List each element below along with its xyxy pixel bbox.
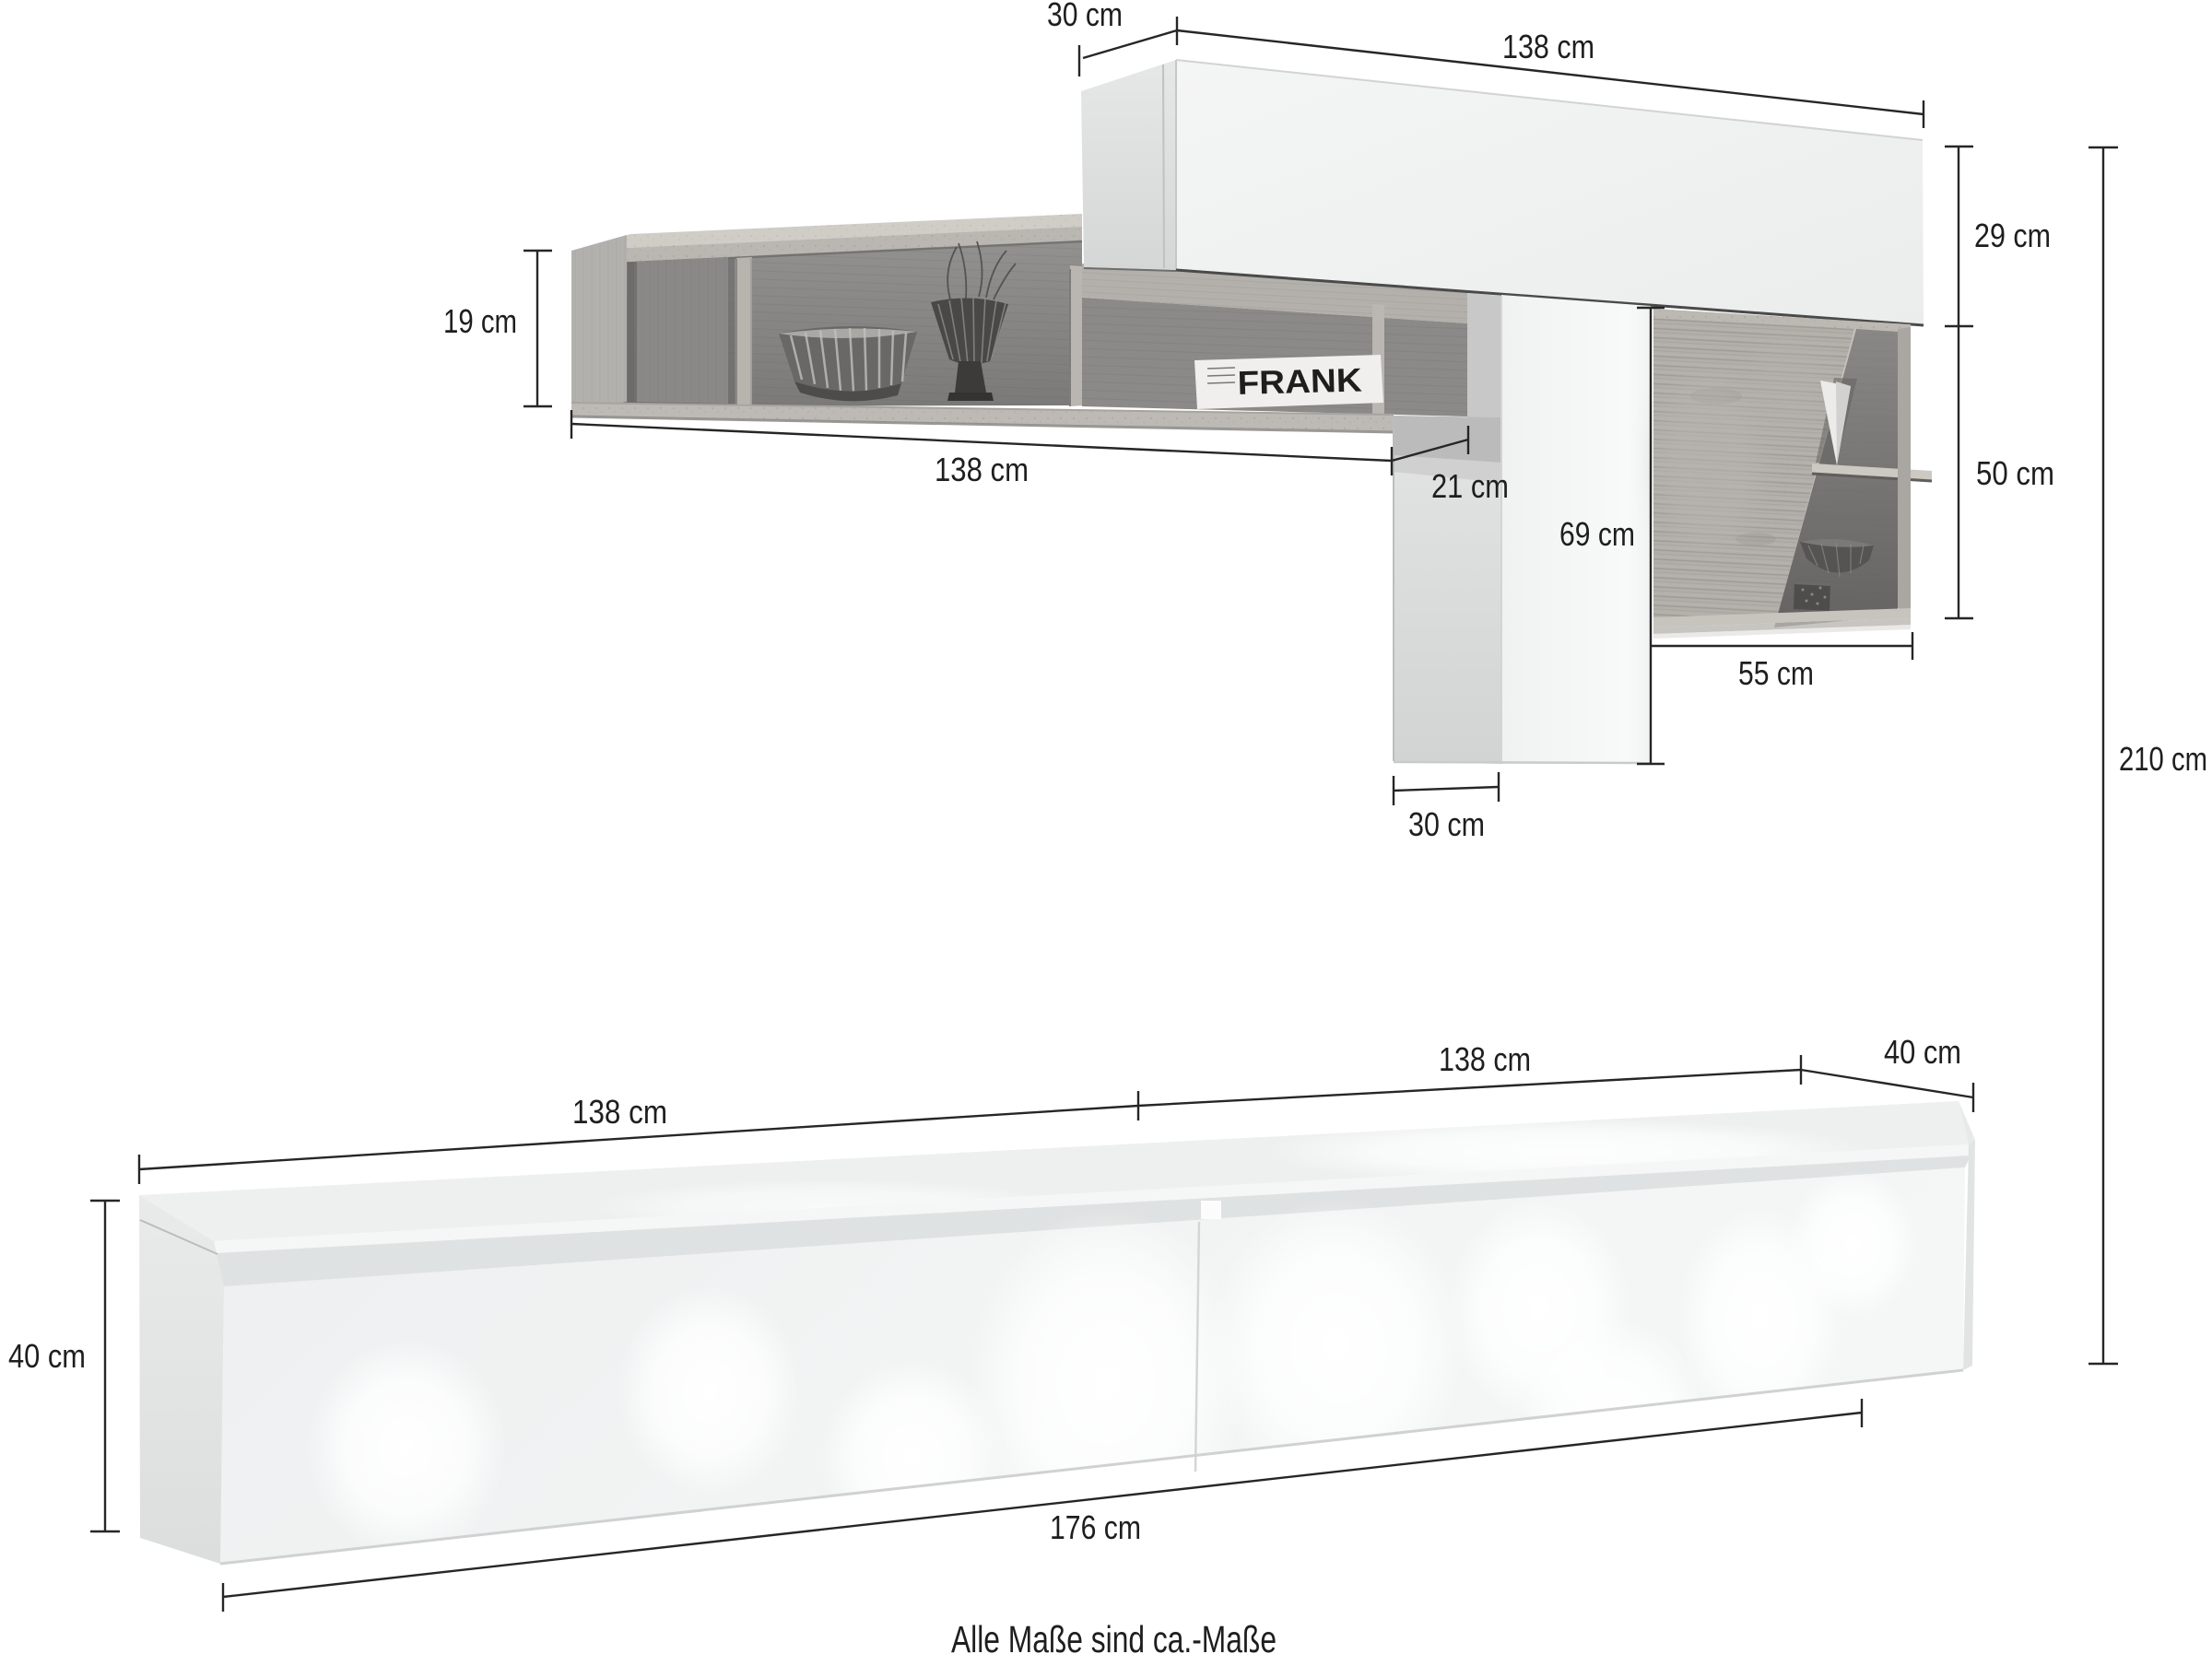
svg-text:19 cm: 19 cm: [443, 302, 517, 340]
svg-text:30 cm: 30 cm: [1408, 805, 1485, 843]
svg-text:40 cm: 40 cm: [1884, 1033, 1961, 1071]
svg-text:30 cm: 30 cm: [1047, 0, 1123, 33]
svg-text:55 cm: 55 cm: [1738, 654, 1814, 692]
svg-text:176 cm: 176 cm: [1050, 1508, 1141, 1546]
svg-text:50 cm: 50 cm: [1976, 454, 2054, 492]
svg-text:138 cm: 138 cm: [935, 451, 1029, 488]
svg-text:138 cm: 138 cm: [1439, 1040, 1531, 1078]
svg-text:40 cm: 40 cm: [8, 1337, 86, 1375]
svg-text:21 cm: 21 cm: [1431, 467, 1509, 505]
svg-text:138 cm: 138 cm: [572, 1093, 667, 1131]
svg-text:29 cm: 29 cm: [1974, 217, 2051, 254]
svg-text:210 cm: 210 cm: [2119, 740, 2207, 778]
svg-text:Alle Maße sind ca.-Maße: Alle Maße sind ca.-Maße: [951, 1618, 1277, 1654]
svg-text:138 cm: 138 cm: [1502, 28, 1594, 65]
svg-text:69 cm: 69 cm: [1559, 515, 1635, 553]
svg-text:FRANK: FRANK: [1237, 360, 1362, 402]
